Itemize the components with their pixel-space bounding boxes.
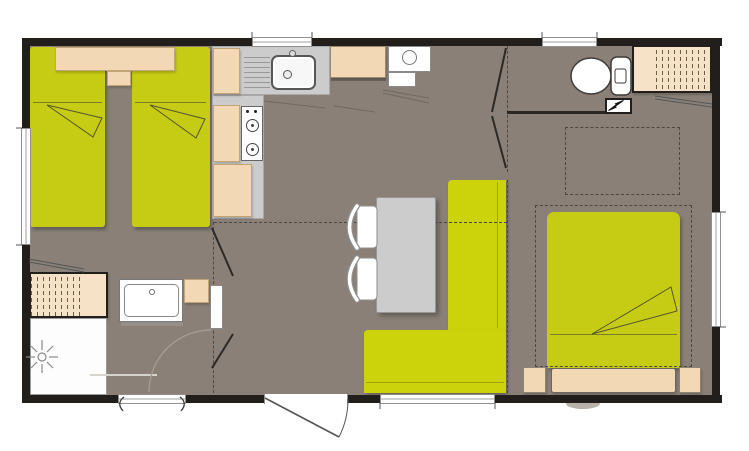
left-partition-doors (212, 228, 233, 368)
bathroom-door-swing (149, 330, 211, 392)
linework-overlay (0, 0, 749, 451)
awning-window-brackets (120, 397, 185, 411)
entrance-door-swing (265, 398, 348, 437)
lightning-bolt-icon (609, 101, 624, 111)
chair-2 (350, 258, 378, 300)
chair-1 (350, 206, 378, 248)
bedroom-accordion-door (492, 48, 506, 168)
floorplan (0, 0, 749, 451)
toilet (571, 57, 631, 95)
kitchen-counter-lines (264, 90, 429, 112)
shower-head-icon (26, 340, 58, 373)
